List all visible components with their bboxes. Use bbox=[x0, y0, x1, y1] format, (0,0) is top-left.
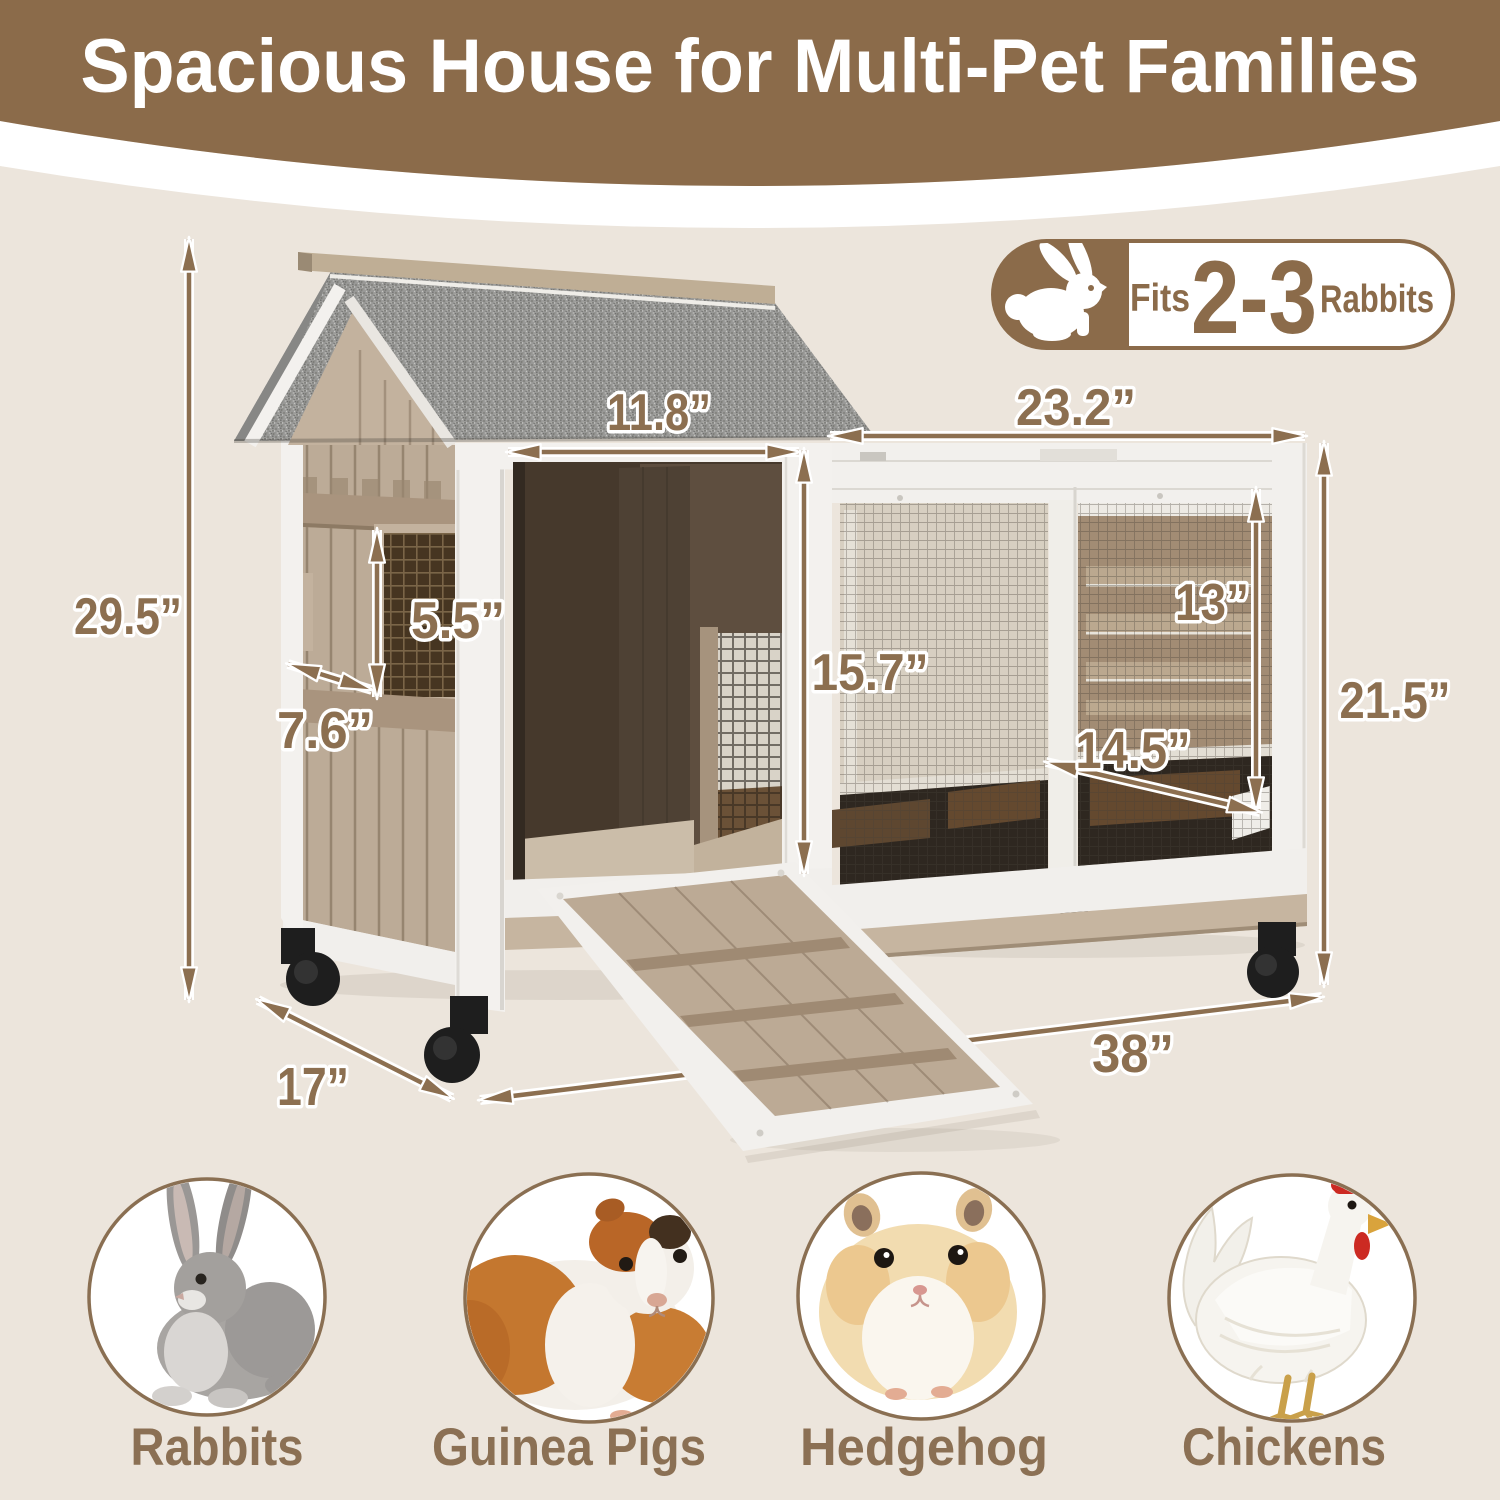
svg-text:13”: 13” bbox=[1175, 574, 1249, 632]
svg-text:7.6”: 7.6” bbox=[277, 702, 373, 760]
svg-text:Rabbits: Rabbits bbox=[131, 1418, 304, 1477]
svg-text:Guinea Pigs: Guinea Pigs bbox=[432, 1418, 706, 1477]
svg-text:23.2”: 23.2” bbox=[1016, 379, 1136, 437]
svg-text:14.5”: 14.5” bbox=[1076, 722, 1191, 780]
svg-text:21.5”: 21.5” bbox=[1340, 672, 1451, 730]
svg-text:Spacious House for Multi-Pet F: Spacious House for Multi-Pet Families bbox=[81, 24, 1420, 109]
svg-text:Hedgehog: Hedgehog bbox=[800, 1418, 1048, 1477]
svg-text:15.7”: 15.7” bbox=[812, 644, 929, 702]
svg-text:29.5”: 29.5” bbox=[74, 588, 182, 646]
svg-text:38”: 38” bbox=[1092, 1024, 1174, 1084]
svg-text:11.8”: 11.8” bbox=[607, 384, 711, 442]
svg-text:2-3: 2-3 bbox=[1191, 240, 1317, 356]
svg-text:Rabbits: Rabbits bbox=[1320, 278, 1434, 321]
svg-text:17”: 17” bbox=[277, 1057, 349, 1117]
svg-text:Fits: Fits bbox=[1130, 277, 1190, 320]
svg-text:Chickens: Chickens bbox=[1182, 1418, 1386, 1477]
svg-text:5.5”: 5.5” bbox=[411, 592, 505, 650]
